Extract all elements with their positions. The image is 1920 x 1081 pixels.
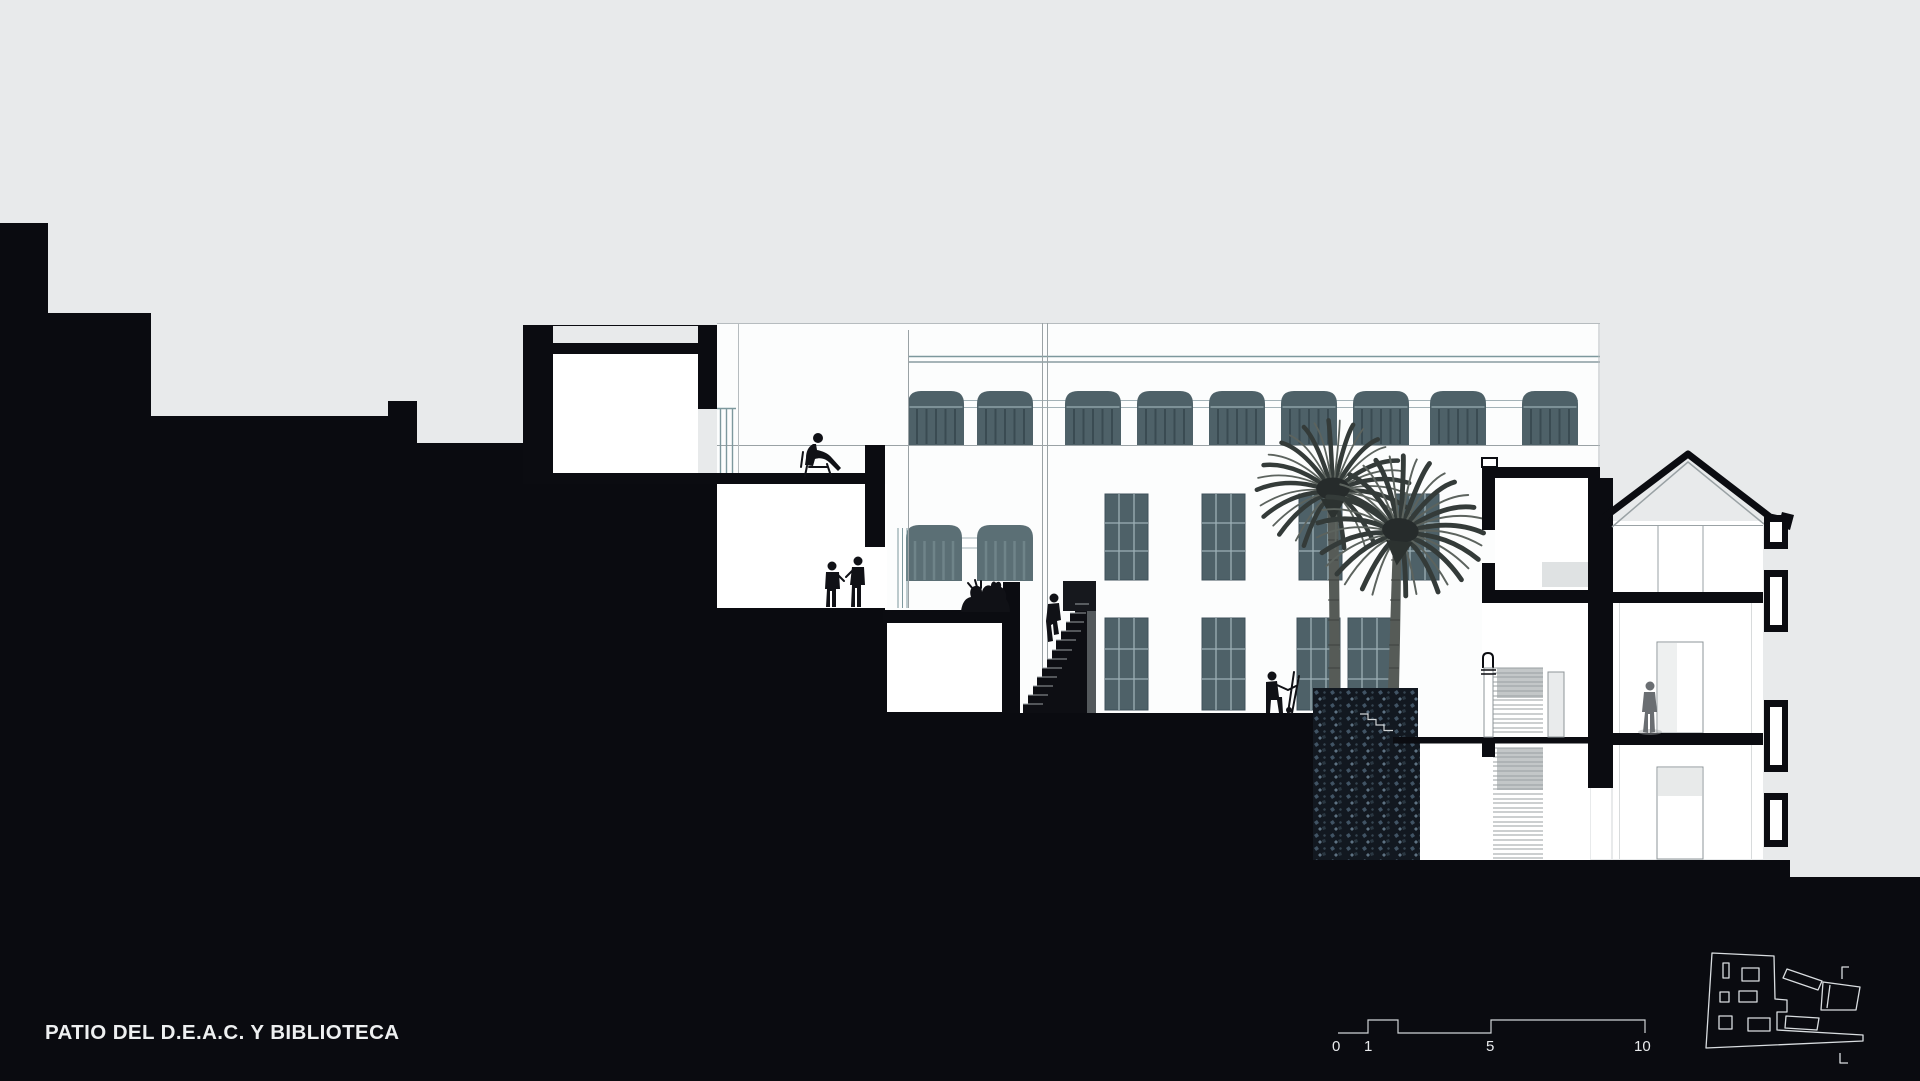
section-drawing: [0, 0, 1920, 1081]
scale-label-0: 0: [1332, 1038, 1340, 1055]
scale-label-5: 5: [1486, 1038, 1494, 1055]
arched-window-row: [908, 391, 1578, 445]
architectural-section-sheet: PATIO DEL D.E.A.C. Y BIBLIOTECA 0 1 5 10: [0, 0, 1920, 1081]
scale-label-10: 10: [1634, 1038, 1651, 1055]
drawing-title: PATIO DEL D.E.A.C. Y BIBLIOTECA: [45, 1021, 399, 1045]
scale-label-1: 1: [1364, 1038, 1372, 1055]
